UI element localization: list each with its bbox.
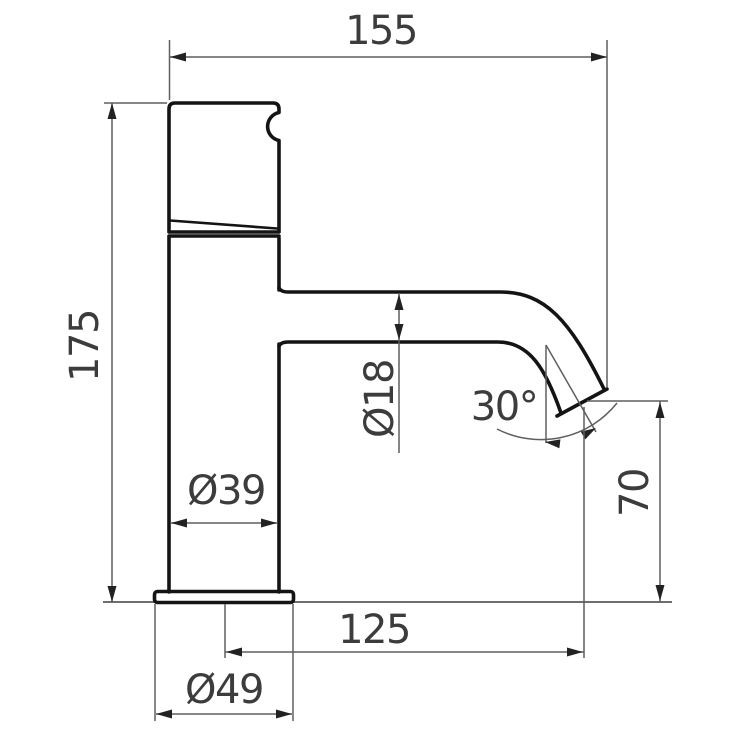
body-diameter-dimension: Ø39 bbox=[171, 468, 277, 528]
arrowhead-top bbox=[395, 294, 404, 310]
arrowhead-left bbox=[171, 519, 187, 528]
outlet-height-dimension: 70 bbox=[587, 401, 668, 602]
handle-outline bbox=[169, 103, 279, 232]
spout-diameter-dimension: Ø18 bbox=[357, 293, 404, 453]
arrowhead-right bbox=[276, 710, 292, 719]
faucet-dimension-drawing: 155 175 Ø18 30° 70 Ø39 bbox=[0, 0, 740, 740]
arrowhead-top bbox=[656, 402, 665, 418]
body-diameter-label: Ø39 bbox=[187, 468, 265, 514]
spout-outlet-face bbox=[557, 389, 607, 416]
arrowhead-top bbox=[108, 103, 117, 119]
arrowhead-bottom bbox=[108, 586, 117, 602]
arrowhead-bottom bbox=[395, 324, 404, 340]
faucet-spout bbox=[279, 288, 607, 416]
faucet-base-flange bbox=[155, 592, 294, 603]
arrowhead-left bbox=[170, 53, 186, 62]
arrowhead-left bbox=[156, 710, 172, 719]
arrowhead-bottom bbox=[656, 585, 665, 601]
arrowhead-left bbox=[226, 648, 242, 657]
overall-width-label: 155 bbox=[345, 8, 417, 54]
outlet-height-label: 70 bbox=[612, 469, 658, 517]
faucet-outline bbox=[155, 103, 608, 603]
faucet-handle bbox=[169, 103, 279, 232]
arrowhead-right bbox=[261, 519, 277, 528]
overall-height-label: 175 bbox=[62, 310, 108, 382]
arrowhead-right bbox=[567, 648, 583, 657]
spout-angle-label: 30° bbox=[471, 384, 537, 430]
base-diameter-label: Ø49 bbox=[185, 667, 263, 713]
faucet-body bbox=[169, 236, 279, 592]
arrowhead-right bbox=[591, 53, 607, 62]
overall-height-dimension: 175 bbox=[62, 103, 167, 602]
drawing-canvas: 155 175 Ø18 30° 70 Ø39 bbox=[0, 0, 740, 740]
spout-reach-label: 125 bbox=[338, 607, 410, 653]
base-diameter-dimension: Ø49 bbox=[155, 604, 293, 721]
spout-diameter-label: Ø18 bbox=[357, 360, 403, 438]
